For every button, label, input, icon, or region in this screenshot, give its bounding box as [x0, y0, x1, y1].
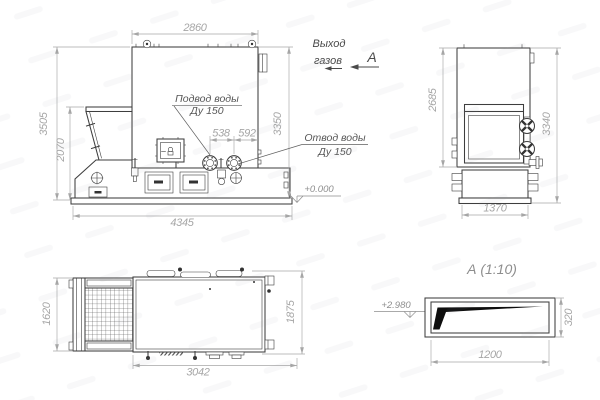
duct-outline: [425, 298, 555, 337]
level-detail-value: +2.980: [381, 300, 411, 311]
view-a-label: А: [366, 49, 376, 65]
label-water-supply-line2: Ду 150: [189, 105, 223, 117]
plan-grate-frame: [69, 278, 133, 351]
level-zero-symbol: [291, 196, 341, 203]
dim-detail-right-value: 320: [563, 308, 575, 327]
label-water-return-line2: Ду 150: [317, 146, 351, 158]
dim-detail-right: 320: [555, 298, 575, 337]
side-flange-stub: [529, 157, 543, 169]
technical-drawing: 2860 3505 2070 3350 538 592 4345: [0, 0, 600, 400]
water-flange-supply: [203, 156, 218, 171]
label-water-supply-line1: Подвод воды: [175, 93, 239, 105]
plan-right-clamps: [265, 276, 274, 349]
dim-front-height-overall-value: 3505: [38, 111, 50, 135]
dim-front-right-height-value: 3350: [272, 111, 284, 135]
level-zero-value: +0.000: [304, 184, 334, 195]
dim-front-top: 2860: [132, 22, 258, 44]
side-bracket: [259, 54, 267, 72]
plan-bottom-fittings: [146, 352, 244, 361]
side-rear-panel: [465, 105, 524, 164]
foundation-plate: [71, 198, 292, 204]
dim-plan-bottom-value: 3042: [186, 367, 209, 379]
hatched-strip: [159, 352, 183, 356]
level-mark-detail: +2.980: [374, 300, 425, 318]
inspection-hatch: [155, 137, 185, 163]
plan-top-slots: [147, 268, 244, 278]
plan-view: 1620 1875 3042: [41, 268, 305, 379]
dim-plan-left-value: 1620: [41, 301, 53, 325]
valve-handwheel-top: [520, 119, 535, 134]
dim-side-left-value: 2685: [427, 87, 439, 112]
side-view: 2685 3340 1370: [427, 45, 561, 220]
fuel-hopper: [86, 107, 132, 160]
grate-mesh: [85, 288, 133, 341]
valve-handwheel-bottom: [520, 142, 535, 157]
drain-fitting-left: [132, 168, 139, 176]
dim-side-left: 2685: [427, 48, 457, 167]
front-view: 2860 3505 2070 3350 538 592 4345: [38, 22, 368, 229]
dim-plan-left: 1620: [41, 278, 73, 351]
dim-side-bottom-value: 1370: [483, 203, 507, 215]
drawing-canvas: 2860 3505 2070 3350 538 592 4345: [0, 0, 600, 400]
level-detail-symbol: [374, 312, 425, 318]
side-base: [452, 170, 538, 204]
gas-outlet-label-line1: Выход: [312, 38, 345, 50]
drain-fitting-right: [218, 170, 226, 178]
dim-front-bottom-value: 4345: [170, 217, 194, 229]
dim-detail-bottom-value: 1200: [478, 349, 502, 361]
detail-a-view: А (1:10) 320 1200 +2.980: [374, 261, 575, 366]
view-direction-arrow-a: А: [350, 49, 379, 70]
detail-a-title: А (1:10): [466, 261, 517, 277]
dim-front-bottom: 4345: [73, 206, 292, 229]
view-a-arrow-icon: [350, 64, 359, 69]
dim-flange-b-value: 592: [238, 128, 256, 140]
gas-outlet-annotation: Выход газов А: [312, 38, 379, 71]
dim-detail-bottom: 1200: [431, 340, 549, 366]
gas-outlet-label-line2: газов: [314, 55, 342, 67]
dim-side-right-value: 3340: [541, 111, 553, 135]
dim-front-top-value: 2860: [182, 22, 207, 34]
plan-body: [133, 277, 265, 352]
label-water-return-line1: Отвод воды: [304, 132, 366, 144]
dim-flange-a-value: 538: [212, 128, 231, 140]
level-mark-zero: +0.000: [291, 184, 341, 203]
dim-side-bottom: 1370: [462, 203, 528, 220]
water-flange-return: [227, 156, 242, 171]
dim-front-height-hopper-value: 2070: [55, 137, 67, 162]
dim-plan-right-value: 1875: [285, 299, 297, 323]
